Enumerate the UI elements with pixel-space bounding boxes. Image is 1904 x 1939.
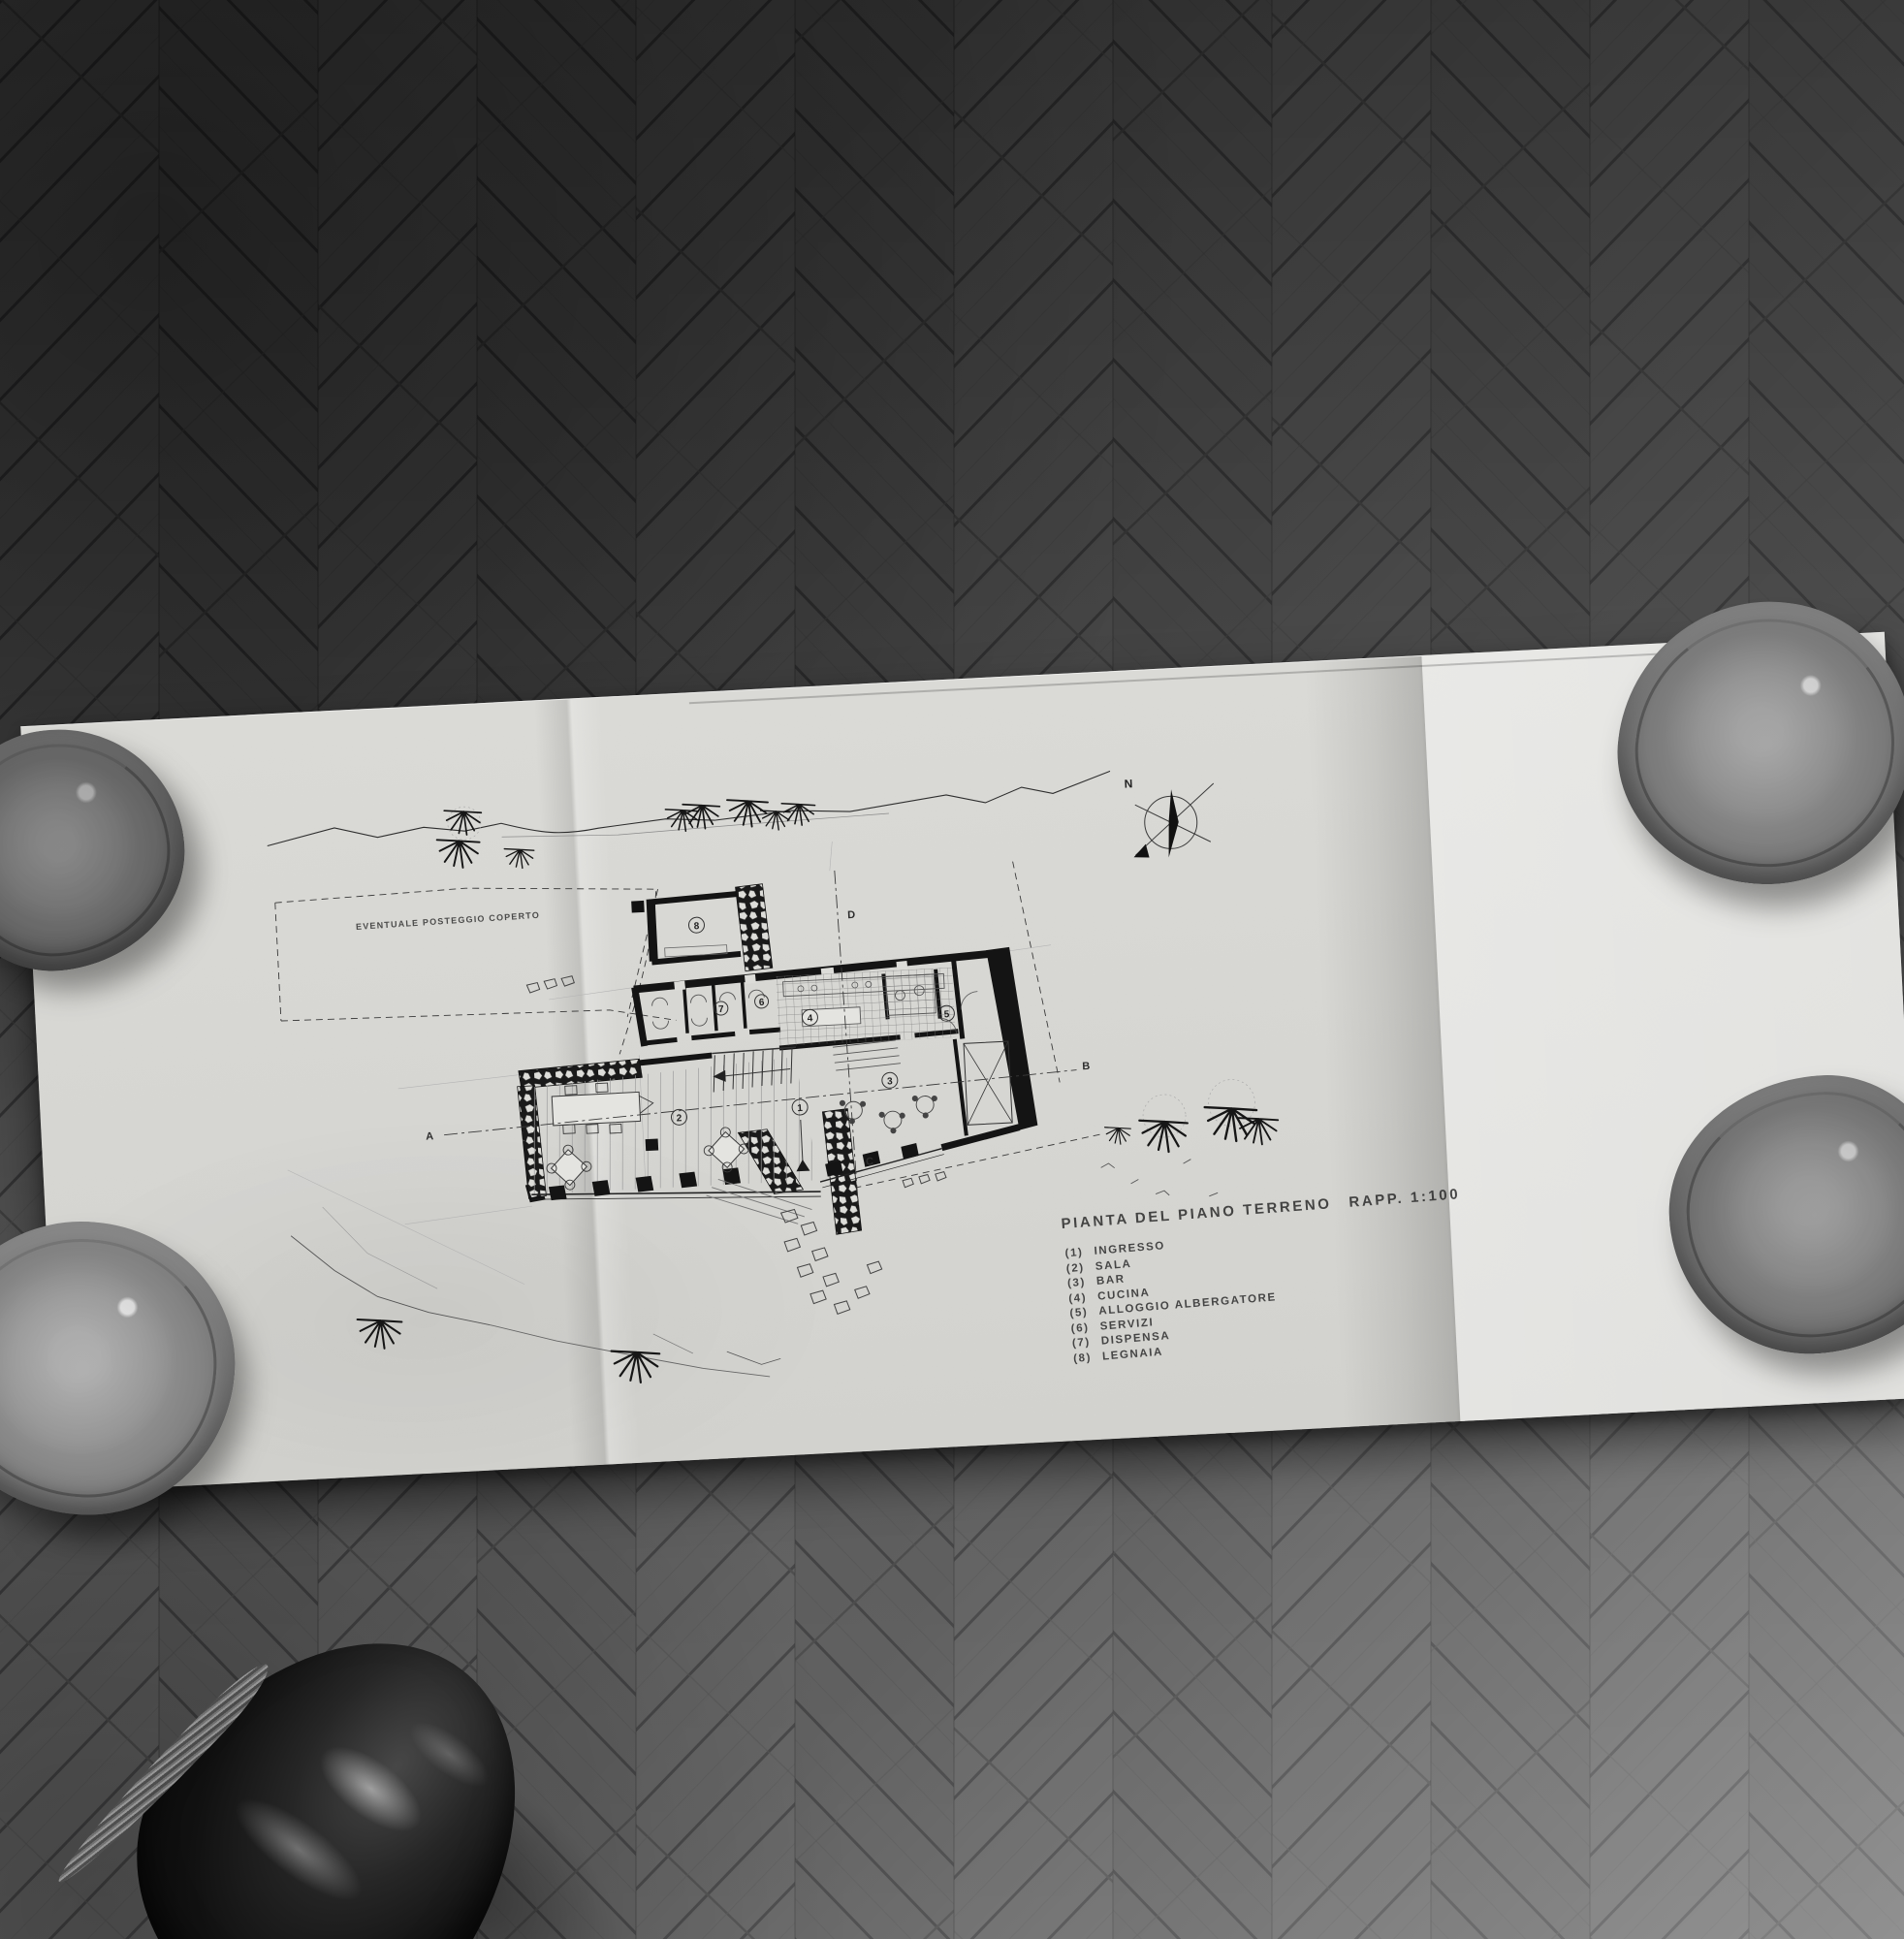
terrain-sketch-top	[266, 771, 1113, 880]
photo-scene: N 1 2 3 4 5 6 7 8	[0, 0, 1904, 1939]
room-number-8: 8	[694, 921, 701, 932]
section-marker-b: B	[1082, 1061, 1091, 1072]
section-marker-d: D	[847, 909, 856, 921]
compass-north-label: N	[1124, 777, 1132, 790]
compass-icon	[1130, 783, 1218, 859]
room-legnaia-walls	[649, 883, 773, 975]
room-number-2: 2	[677, 1113, 683, 1124]
section-marker-c: C	[866, 1156, 874, 1167]
room-number-1: 1	[797, 1103, 804, 1114]
section-marker-a: A	[426, 1130, 434, 1142]
room-number-7: 7	[718, 1004, 725, 1015]
site-marker-square	[631, 901, 645, 913]
room-number-5: 5	[943, 1009, 950, 1020]
room-number-4: 4	[807, 1013, 813, 1024]
room-number-3: 3	[887, 1076, 894, 1087]
room-number-6: 6	[759, 998, 766, 1008]
site-note-label: EVENTUALE POSTEGGIO COPERTO	[356, 910, 541, 932]
trees-right	[1096, 1077, 1282, 1201]
terrain-sketch-bottom	[290, 1185, 781, 1401]
